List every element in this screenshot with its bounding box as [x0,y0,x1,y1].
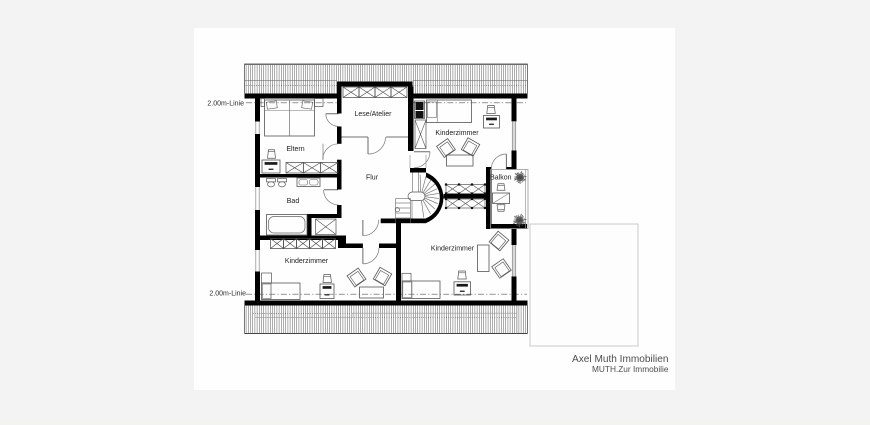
svg-text:2.00m-Linie: 2.00m-Linie [209,290,246,297]
svg-text:Lese/Atelier: Lese/Atelier [355,111,393,118]
svg-text:MUTH.Zur Immobilie: MUTH.Zur Immobilie [592,364,669,374]
svg-text:Kinderzimmer: Kinderzimmer [431,246,475,253]
svg-text:Kinderzimmer: Kinderzimmer [285,258,329,265]
svg-text:Balkon: Balkon [490,175,512,182]
svg-text:Eltern: Eltern [286,146,304,153]
svg-text:Kinderzimmer: Kinderzimmer [435,130,479,137]
svg-text:Bad: Bad [287,198,300,205]
svg-text:Flur: Flur [366,175,379,182]
svg-text:2.00m-Linie: 2.00m-Linie [207,100,244,107]
